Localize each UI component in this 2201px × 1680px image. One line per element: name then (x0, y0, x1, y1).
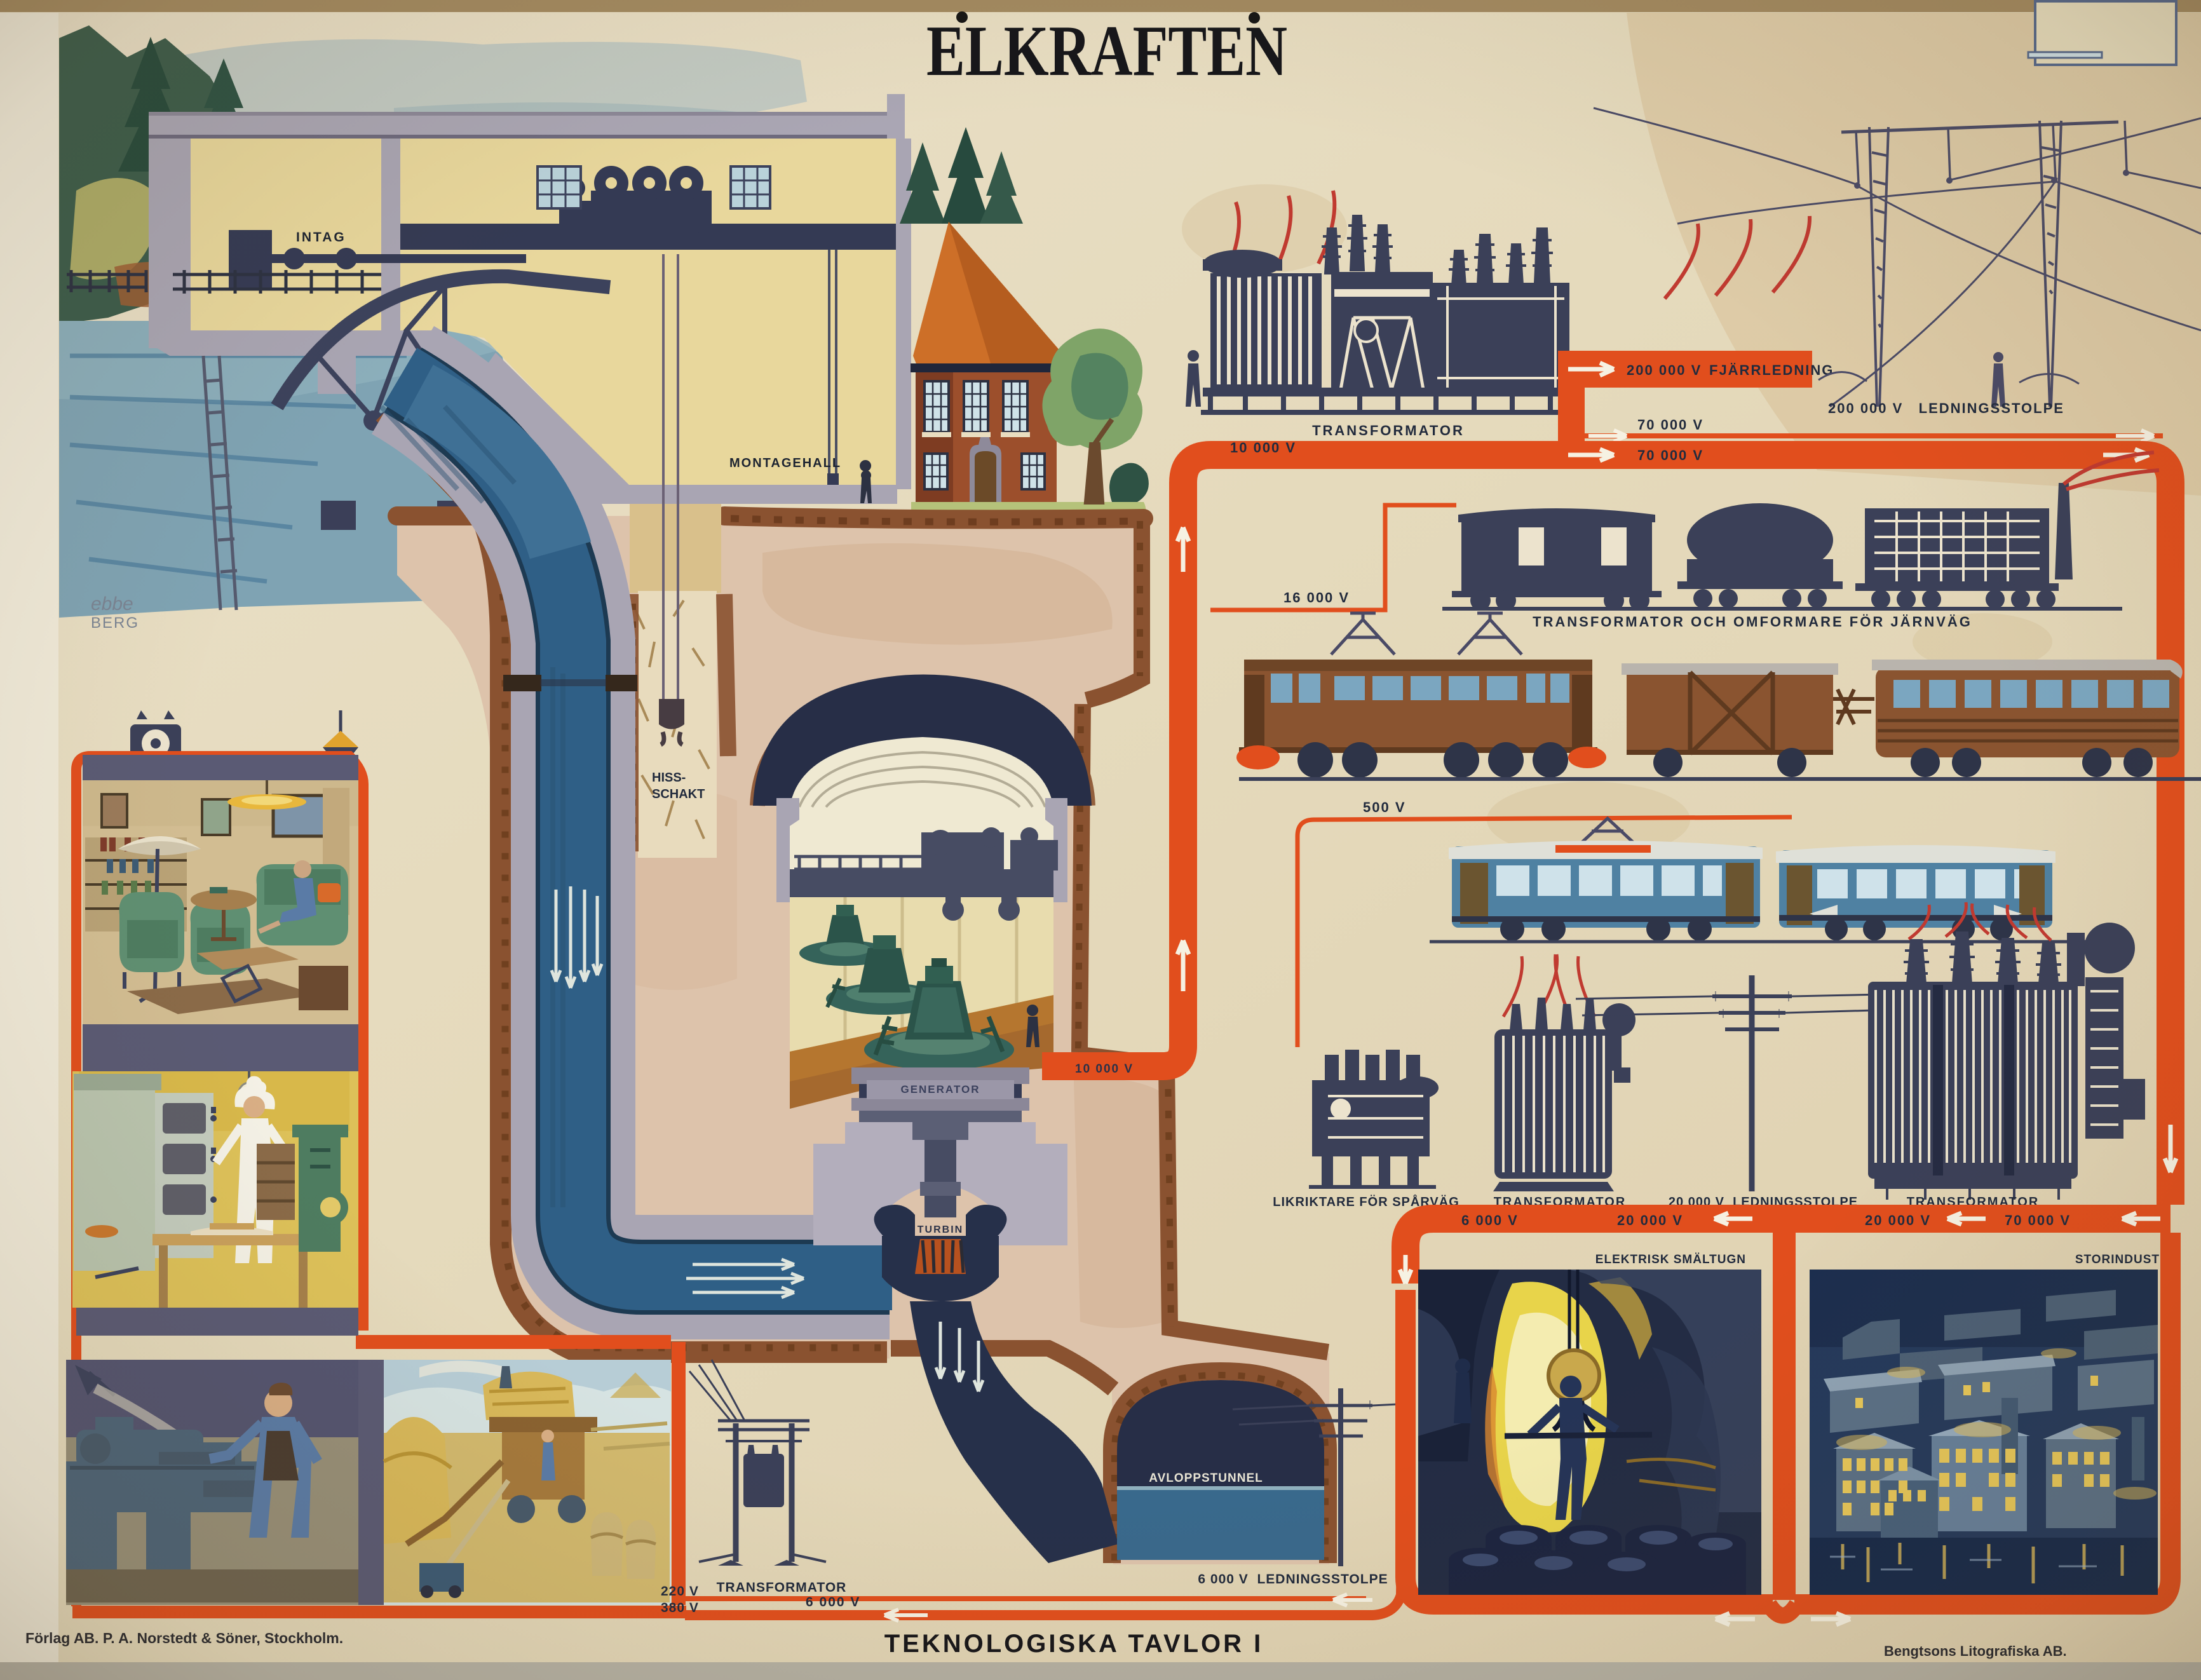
svg-text:MONTAGEHALL: MONTAGEHALL (729, 456, 841, 470)
svg-text:70 000 V: 70 000 V (1637, 447, 1703, 463)
svg-text:ELKRAFTEN: ELKRAFTEN (926, 11, 1287, 91)
svg-text:200 000 V: 200 000 V (1627, 362, 1702, 378)
svg-text:20 000 V: 20 000 V (1865, 1212, 1931, 1228)
svg-text:20 000 V: 20 000 V (1617, 1212, 1683, 1228)
svg-text:ELEKTRISK SMÄLTUGN: ELEKTRISK SMÄLTUGN (1595, 1253, 1746, 1266)
svg-text:Förlag AB. P. A. Norstedt & Sö: Förlag AB. P. A. Norstedt & Söner, Stock… (25, 1630, 343, 1646)
svg-text:200 000 V LEDNINGSSTOLPE: 200 000 V LEDNINGSSTOLPE (1828, 400, 2064, 416)
svg-text:TURBIN: TURBIN (918, 1224, 963, 1235)
svg-text:TRANSFORMATOR: TRANSFORMATOR (717, 1580, 847, 1595)
svg-text:FJÄRRLEDNING: FJÄRRLEDNING (1709, 362, 1834, 378)
svg-text:AVLOPPSTUNNEL: AVLOPPSTUNNEL (1149, 1472, 1263, 1485)
svg-text:TRANSFORMATOR OCH OMFORMARE FÖ: TRANSFORMATOR OCH OMFORMARE FÖR JÄRNVÄG (1533, 614, 1972, 630)
svg-text:ebbe: ebbe (91, 593, 133, 614)
svg-text:INTAG: INTAG (296, 230, 346, 245)
svg-text:SCHAKT: SCHAKT (652, 787, 705, 801)
svg-text:6 000 V: 6 000 V (1461, 1212, 1519, 1228)
svg-text:6 000 V LEDNINGSSTOLPE: 6 000 V LEDNINGSSTOLPE (1198, 1572, 1388, 1587)
svg-text:70 000 V: 70 000 V (1637, 417, 1703, 433)
svg-text:10 000 V: 10 000 V (1075, 1062, 1134, 1076)
svg-text:TEKNOLOGISKA TAVLOR I: TEKNOLOGISKA TAVLOR I (884, 1630, 1264, 1658)
svg-text:380 V: 380 V (661, 1601, 699, 1615)
svg-text:16 000 V: 16 000 V (1283, 590, 1350, 606)
svg-text:GENERATOR: GENERATOR (900, 1083, 980, 1095)
svg-text:6 000 V: 6 000 V (806, 1595, 860, 1609)
svg-text:220 V: 220 V (661, 1584, 699, 1599)
svg-text:10 000 V: 10 000 V (1230, 440, 1296, 456)
svg-text:HISS-: HISS- (652, 771, 686, 785)
svg-text:500 V: 500 V (1363, 799, 1406, 815)
svg-text:BERG: BERG (91, 614, 139, 632)
svg-text:TRANSFORMATOR: TRANSFORMATOR (1312, 423, 1465, 438)
svg-text:STORINDUSTRI: STORINDUSTRI (2075, 1253, 2173, 1266)
svg-text:70 000 V: 70 000 V (2005, 1212, 2071, 1228)
svg-text:Bengtsons Litografiska AB.: Bengtsons Litografiska AB. (1884, 1643, 2067, 1659)
